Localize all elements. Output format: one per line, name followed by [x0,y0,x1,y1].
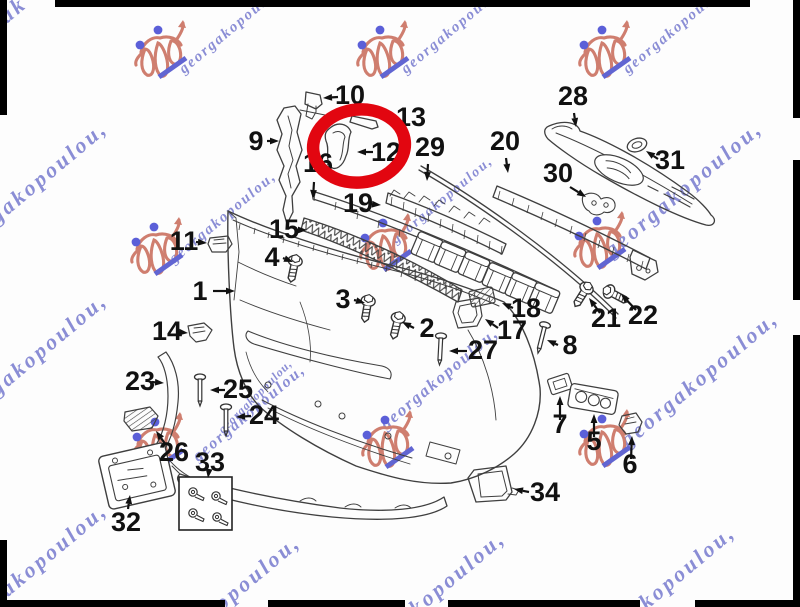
svg-text:28: 28 [558,81,588,111]
svg-text:1: 1 [192,276,207,306]
svg-text:24: 24 [249,400,279,430]
svg-text:9: 9 [248,126,263,156]
svg-text:6: 6 [622,449,637,479]
svg-text:4: 4 [264,242,279,272]
svg-text:18: 18 [511,293,541,323]
svg-text:3: 3 [335,284,350,314]
svg-text:27: 27 [468,335,498,365]
svg-text:32: 32 [111,507,141,537]
svg-text:15: 15 [269,214,299,244]
svg-text:31: 31 [655,145,685,175]
svg-text:29: 29 [415,132,445,162]
svg-text:11: 11 [170,226,199,256]
svg-text:23: 23 [125,366,155,396]
svg-text:30: 30 [543,158,573,188]
svg-text:14: 14 [152,316,182,346]
svg-text:25: 25 [223,374,253,404]
svg-text:8: 8 [562,330,577,360]
svg-text:19: 19 [343,188,373,218]
svg-text:22: 22 [628,300,658,330]
svg-text:34: 34 [530,477,560,507]
svg-text:20: 20 [490,126,520,156]
svg-text:2: 2 [419,313,434,343]
